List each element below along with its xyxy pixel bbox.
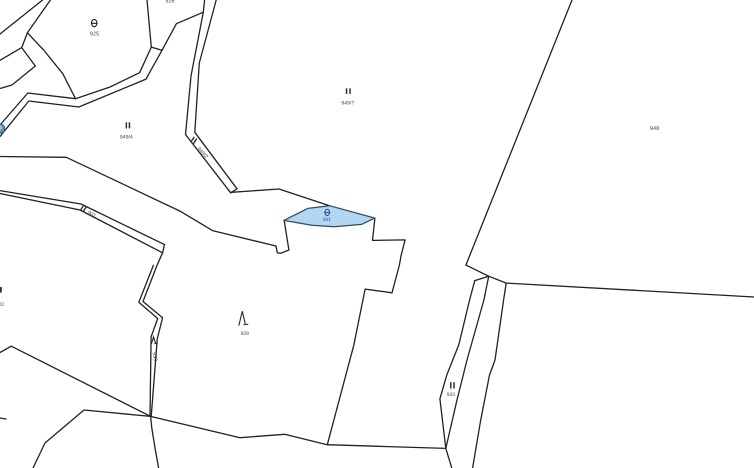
svg-text:925: 925 (90, 31, 99, 37)
svg-text:926: 926 (165, 0, 174, 4)
svg-text:933: 933 (447, 392, 456, 398)
svg-text:931: 931 (323, 217, 331, 223)
svg-text:949/7: 949/7 (341, 101, 354, 107)
svg-text:948: 948 (650, 126, 659, 132)
svg-text:949/4: 949/4 (120, 134, 133, 140)
svg-text:/2: /2 (0, 302, 4, 308)
svg-text:929: 929 (241, 331, 250, 337)
svg-text:930: 930 (151, 352, 158, 362)
